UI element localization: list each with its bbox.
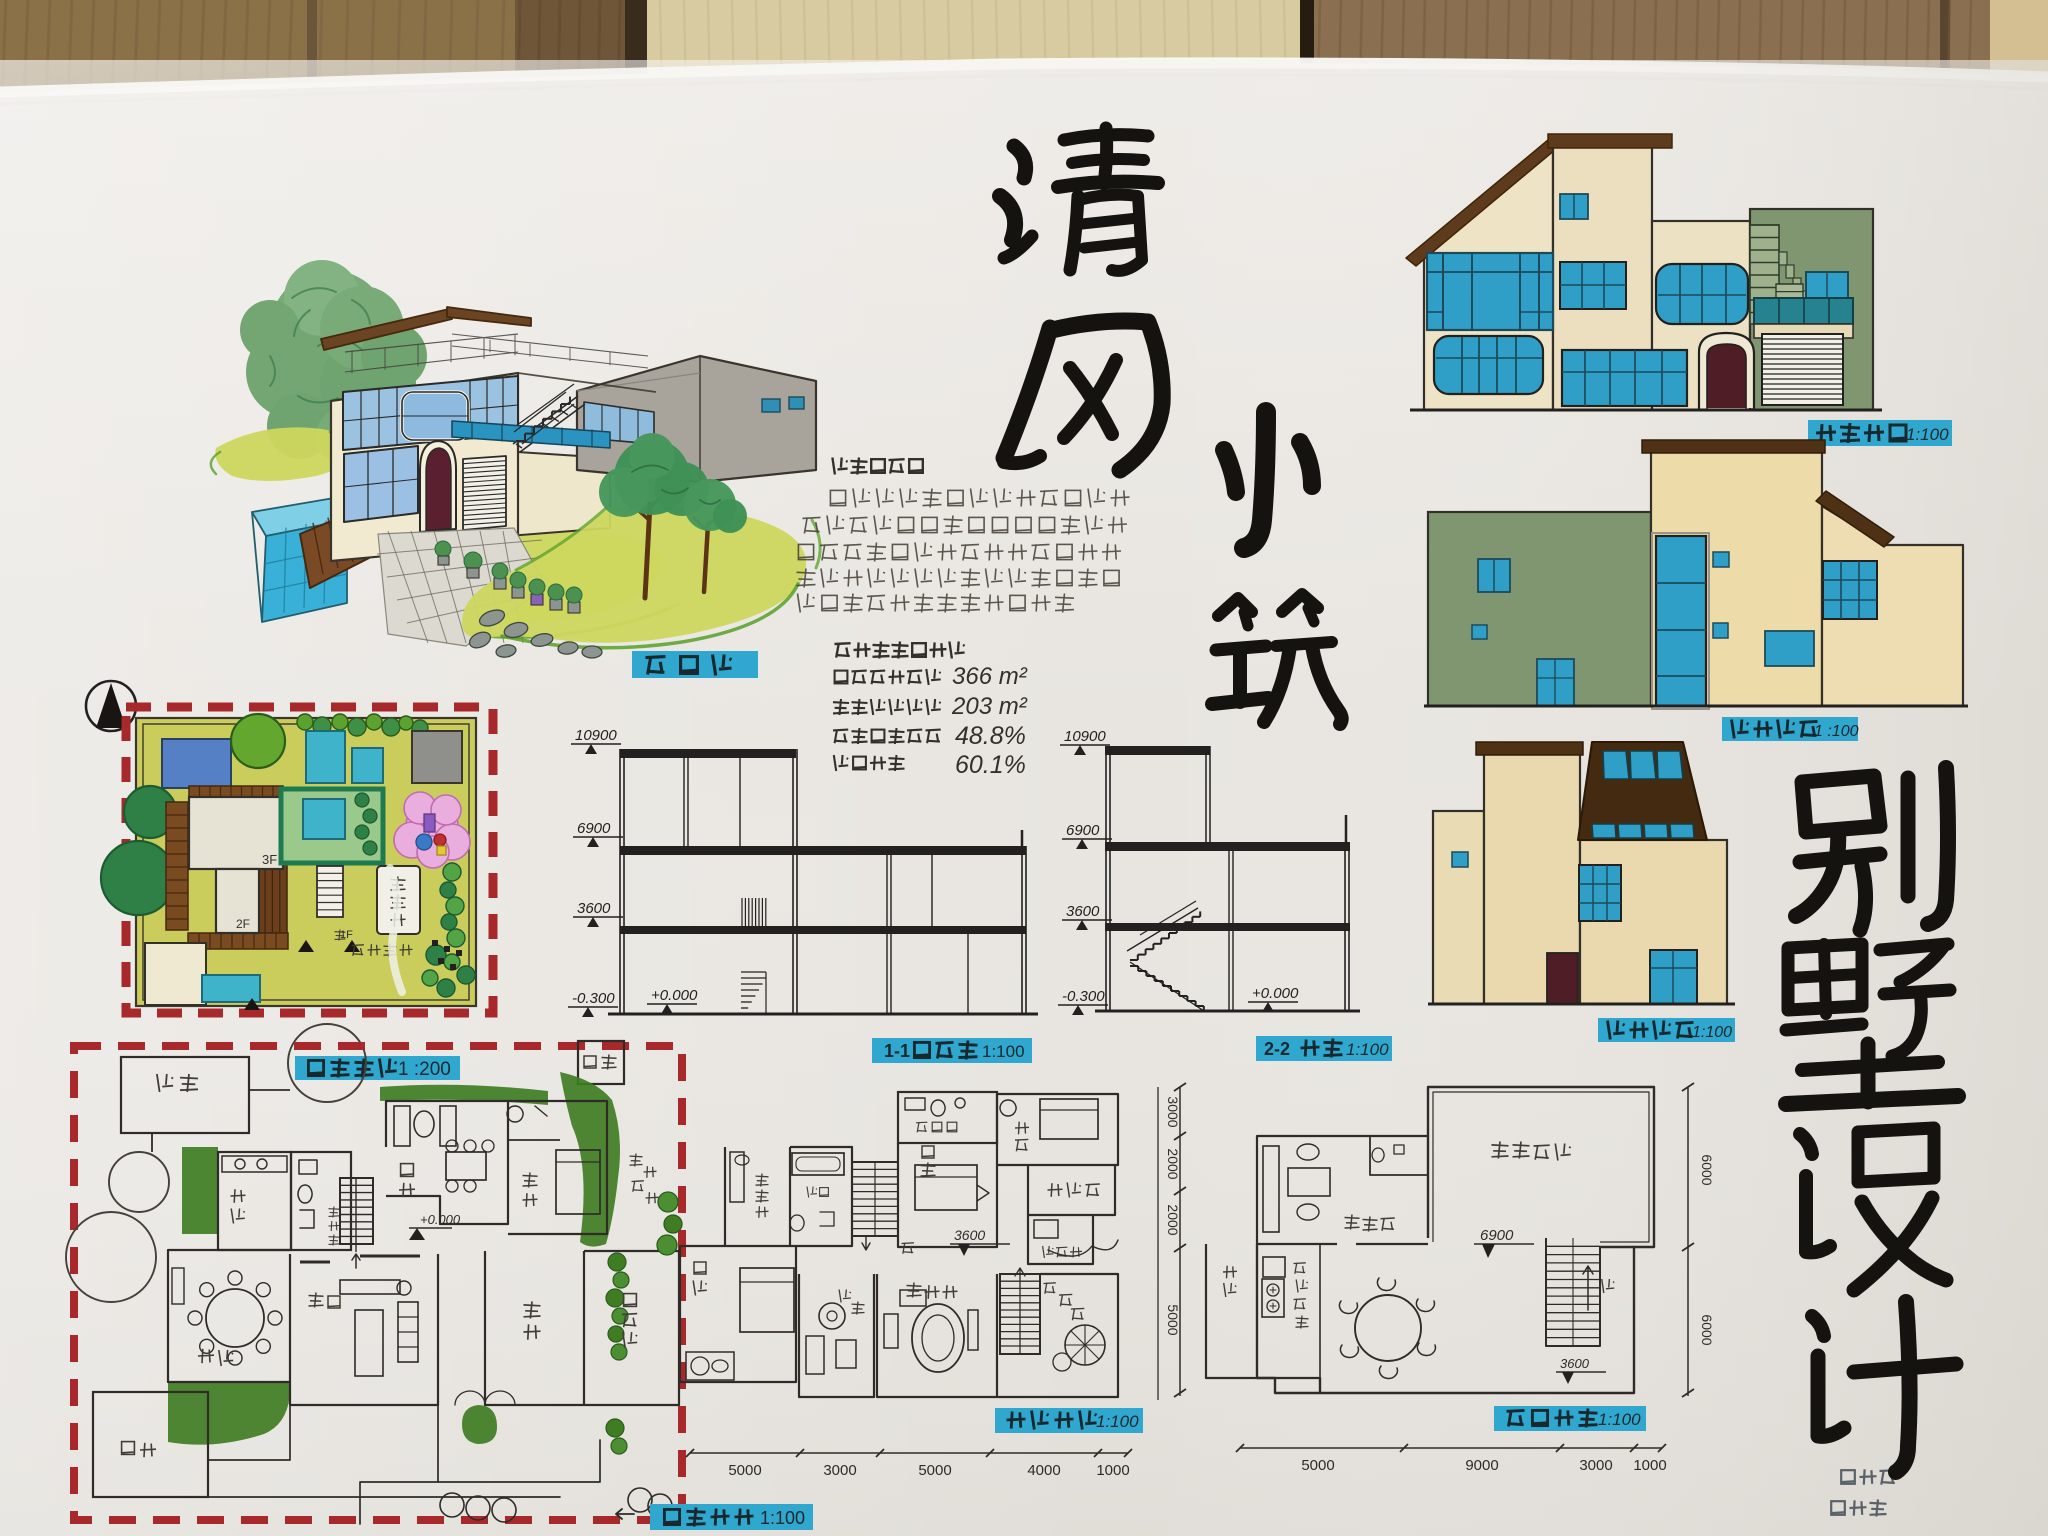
svg-text:1:100: 1:100 <box>1906 425 1949 444</box>
svg-text:60.1%: 60.1% <box>955 751 1026 779</box>
svg-text:3600: 3600 <box>577 900 611 917</box>
svg-text:-0.300: -0.300 <box>572 990 615 1007</box>
svg-text:1-1: 1-1 <box>884 1041 910 1061</box>
svg-text:2F: 2F <box>236 917 250 931</box>
svg-text:2000: 2000 <box>1165 1148 1181 1179</box>
svg-text:6000: 6000 <box>1699 1154 1715 1185</box>
svg-text:366 m²: 366 m² <box>952 663 1028 690</box>
svg-text:+0.000: +0.000 <box>651 987 698 1004</box>
svg-text:1:100: 1:100 <box>1096 1412 1139 1431</box>
svg-text:10900: 10900 <box>1064 728 1106 745</box>
svg-text:+0.000: +0.000 <box>1252 985 1299 1002</box>
svg-text:3600: 3600 <box>1560 1356 1590 1371</box>
svg-text:6900: 6900 <box>1480 1227 1514 1244</box>
svg-text:6000: 6000 <box>1699 1314 1715 1345</box>
svg-text:5000: 5000 <box>1301 1457 1334 1474</box>
svg-text:+0.000: +0.000 <box>420 1212 461 1227</box>
svg-text:1000: 1000 <box>1633 1457 1666 1474</box>
svg-text:1000: 1000 <box>1096 1462 1129 1479</box>
svg-text:3000: 3000 <box>1579 1457 1612 1474</box>
svg-text:3600: 3600 <box>1066 903 1100 920</box>
svg-text:1F: 1F <box>340 929 353 941</box>
svg-text:3000: 3000 <box>1165 1096 1181 1127</box>
svg-text:1 :100: 1 :100 <box>1814 723 1859 740</box>
svg-text:6900: 6900 <box>577 820 611 837</box>
svg-text:1:100: 1:100 <box>760 1508 805 1528</box>
svg-text:6900: 6900 <box>1066 822 1100 839</box>
svg-text:2000: 2000 <box>1165 1204 1181 1235</box>
svg-text:203 m²: 203 m² <box>951 693 1028 720</box>
svg-text:9000: 9000 <box>1465 1457 1498 1474</box>
svg-text:1:100: 1:100 <box>1346 1040 1389 1059</box>
svg-text:5000: 5000 <box>918 1462 951 1479</box>
svg-text:1 :200: 1 :200 <box>398 1059 451 1080</box>
svg-text:-0.300: -0.300 <box>1062 988 1105 1005</box>
svg-text:3600: 3600 <box>954 1227 985 1243</box>
svg-text:1:100: 1:100 <box>1598 1410 1641 1429</box>
svg-text:3F: 3F <box>262 852 277 867</box>
svg-text:1:100: 1:100 <box>982 1042 1025 1061</box>
svg-text:5000: 5000 <box>728 1462 761 1479</box>
svg-text:10900: 10900 <box>575 727 617 744</box>
svg-text:5000: 5000 <box>1165 1304 1181 1335</box>
svg-text:48.8%: 48.8% <box>955 722 1026 750</box>
svg-text:1:100: 1:100 <box>1692 1024 1732 1041</box>
svg-text:2-2: 2-2 <box>1264 1039 1290 1059</box>
svg-text:3000: 3000 <box>823 1462 856 1479</box>
svg-text:4000: 4000 <box>1027 1462 1060 1479</box>
